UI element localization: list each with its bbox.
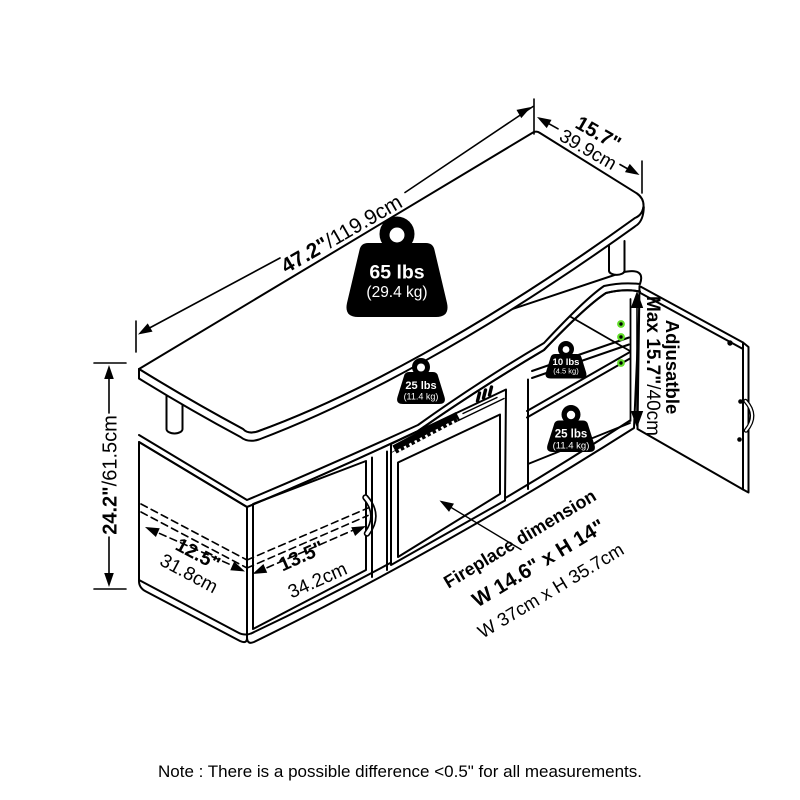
svg-text:(29.4 kg): (29.4 kg) [366, 284, 427, 301]
svg-text:Adjusatble: Adjusatble [662, 320, 683, 415]
svg-text:25 lbs: 25 lbs [405, 380, 436, 392]
svg-text:Note : There is a possible dif: Note : There is a possible difference <0… [158, 762, 642, 781]
svg-text:(11.4 kg): (11.4 kg) [404, 392, 439, 402]
svg-text:Max 15.7"/40cm: Max 15.7"/40cm [642, 296, 663, 436]
svg-text:24.2"/61.5cm: 24.2"/61.5cm [100, 415, 122, 535]
svg-text:65 lbs: 65 lbs [369, 262, 424, 284]
svg-text:(11.4 kg): (11.4 kg) [553, 441, 590, 452]
svg-text:(4.5 kg): (4.5 kg) [553, 367, 579, 376]
svg-text:25 lbs: 25 lbs [555, 429, 588, 441]
